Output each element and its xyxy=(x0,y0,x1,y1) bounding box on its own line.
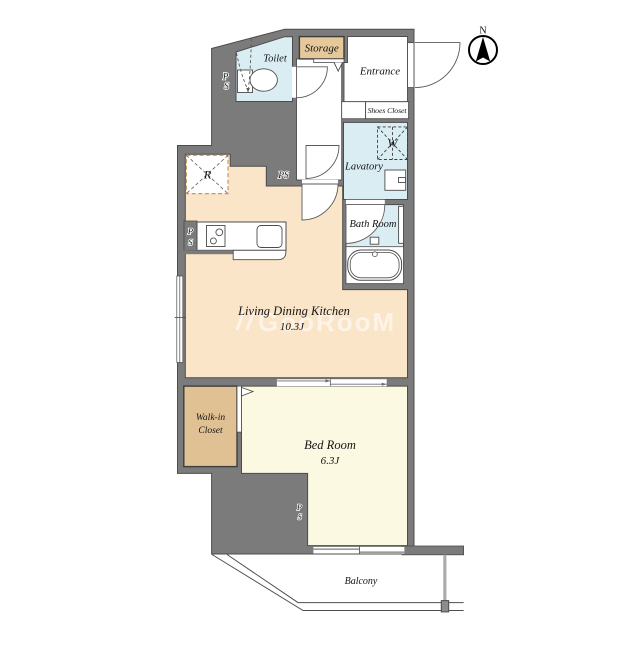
svg-text:Lavatory: Lavatory xyxy=(344,162,383,173)
svg-text:Shoes Closet: Shoes Closet xyxy=(368,106,408,115)
svg-text:P: P xyxy=(296,503,302,512)
svg-text:N: N xyxy=(479,26,486,37)
svg-text:Balcony: Balcony xyxy=(345,576,378,587)
svg-text:Living Dining Kitchen: Living Dining Kitchen xyxy=(237,304,350,318)
svg-text:PS: PS xyxy=(277,171,289,181)
svg-text:Walk-in: Walk-in xyxy=(196,413,225,423)
svg-text:Bath Room: Bath Room xyxy=(350,219,397,230)
svg-text:P: P xyxy=(222,72,229,82)
svg-text:10.3J: 10.3J xyxy=(280,321,305,333)
svg-text:Bed Room: Bed Room xyxy=(304,438,356,452)
svg-text:P: P xyxy=(187,226,193,236)
svg-text:W: W xyxy=(388,136,399,150)
svg-text:S: S xyxy=(298,513,302,522)
svg-text:Entrance: Entrance xyxy=(359,66,400,78)
svg-text:Closet: Closet xyxy=(198,426,223,436)
svg-text:Toilet: Toilet xyxy=(263,54,288,65)
svg-text:S: S xyxy=(224,81,229,91)
svg-text:6.3J: 6.3J xyxy=(321,455,341,467)
svg-text:R: R xyxy=(203,168,212,182)
svg-text:Storage: Storage xyxy=(305,43,339,55)
